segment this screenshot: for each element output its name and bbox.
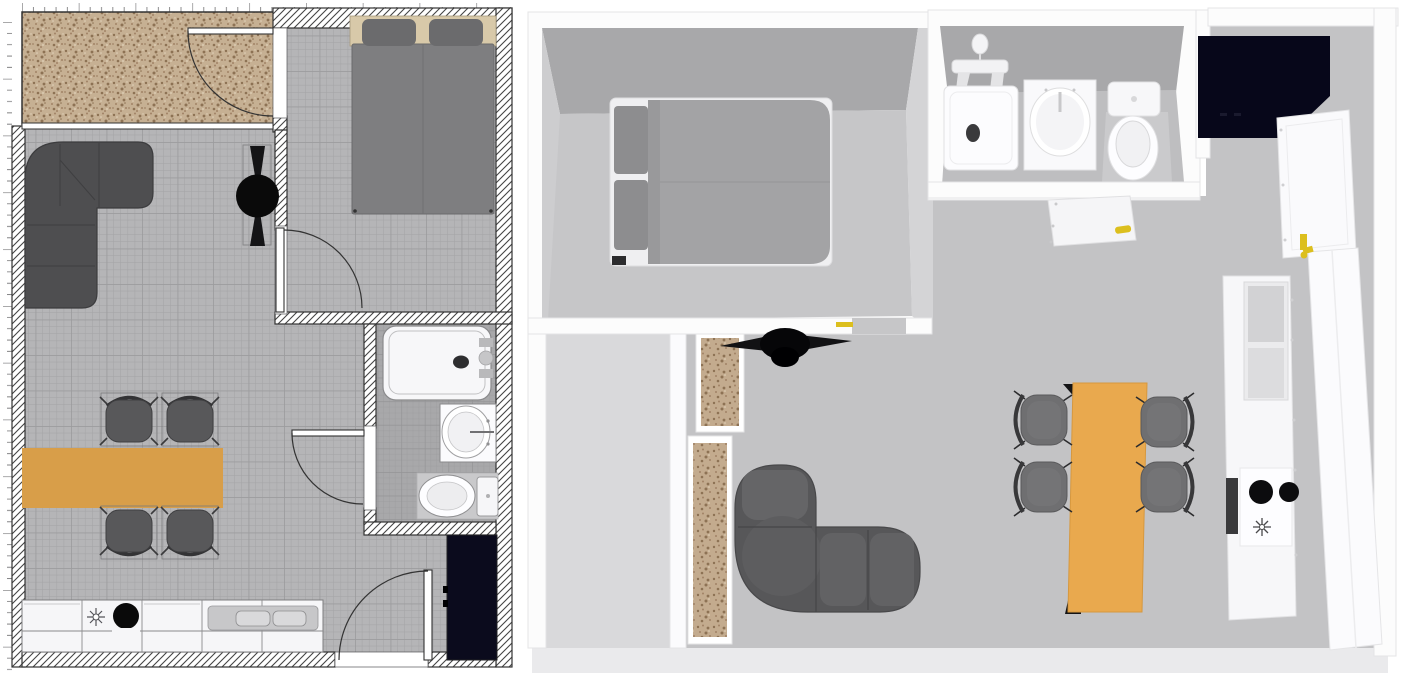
hall-wall-face — [545, 333, 670, 648]
fridge-handle-icon — [1220, 113, 1227, 116]
stove-3d — [1240, 468, 1299, 546]
pot-icon — [112, 603, 140, 633]
oven-window-3d — [1226, 478, 1238, 534]
bathroom-door-3d — [1048, 196, 1136, 246]
bathtub-2d[interactable] — [383, 326, 493, 400]
west-outer-wall — [528, 333, 546, 648]
bedroom-door-handle-icon — [836, 322, 853, 327]
view-3d-pane[interactable] — [520, 0, 1416, 680]
sink-vanity-2d[interactable] — [440, 404, 496, 462]
refrigerator-2d[interactable] — [443, 535, 497, 660]
bathroom-3d — [928, 10, 1200, 200]
sink-3d — [1024, 80, 1096, 170]
floorplan-workspace — [0, 0, 1416, 680]
bedroom-door-opening-3d — [852, 318, 906, 334]
fridge-handle-icon — [1234, 113, 1241, 116]
kitchen-counter-2d[interactable] — [22, 600, 323, 652]
hall-living-wall — [22, 123, 273, 129]
double-sink-2d — [208, 606, 318, 630]
bedroom-3d — [528, 12, 932, 334]
dining-table-2d[interactable] — [22, 448, 223, 508]
front-door-3d — [1277, 110, 1356, 259]
hall-living-wall-3d — [670, 326, 686, 648]
toilet-2d[interactable] — [417, 473, 498, 519]
left-ruler — [0, 12, 12, 672]
double-bed-3d — [610, 98, 832, 266]
bathtub-3d — [944, 86, 1018, 170]
floor-slab-edge — [532, 648, 1388, 673]
plan-2d-pane[interactable] — [0, 0, 520, 680]
north-outer-wall — [1208, 8, 1398, 26]
bathroom-south-wall — [928, 182, 1200, 198]
double-bed-2d[interactable] — [350, 16, 496, 214]
